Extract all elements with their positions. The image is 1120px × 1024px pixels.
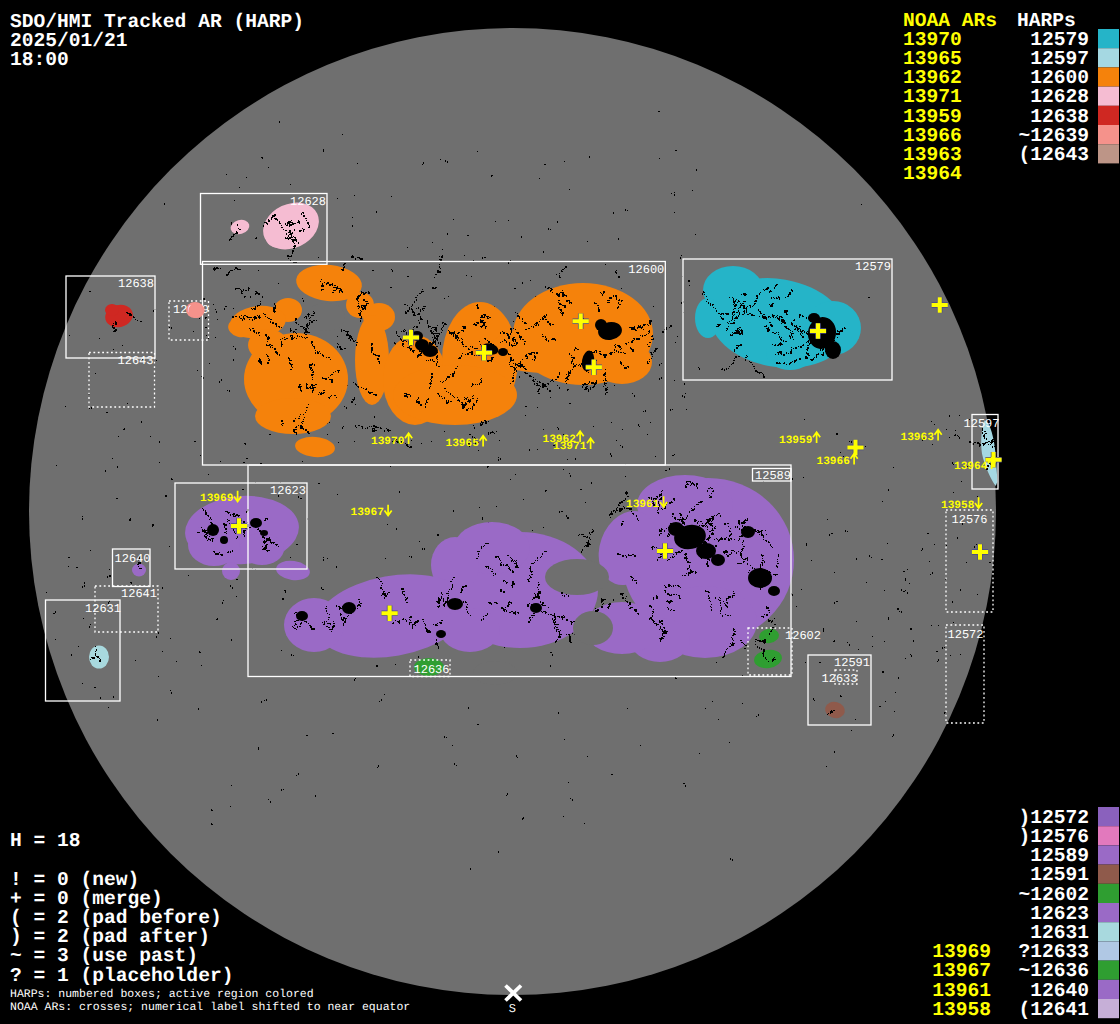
svg-text:12589: 12589 (755, 469, 791, 483)
svg-text:12636: 12636 (414, 663, 450, 677)
svg-text:13964: 13964 (954, 461, 988, 473)
svg-text:18:00: 18:00 (10, 49, 69, 71)
svg-text:12623: 12623 (270, 484, 306, 498)
svg-text:12631: 12631 (85, 602, 121, 616)
svg-text:12638: 12638 (118, 277, 154, 291)
svg-text:13970: 13970 (371, 436, 405, 448)
svg-text:12591: 12591 (834, 656, 870, 670)
svg-text:13958: 13958 (932, 999, 991, 1021)
svg-text:13971: 13971 (553, 441, 587, 453)
svg-text:13963: 13963 (901, 432, 935, 444)
svg-text:(12641: (12641 (1018, 999, 1089, 1021)
svg-text:S: S (509, 1002, 516, 1016)
svg-text:? = 1 (placeholder): ? = 1 (placeholder) (10, 965, 233, 987)
svg-text:12602: 12602 (785, 629, 821, 643)
svg-text:(12643: (12643 (1018, 144, 1089, 166)
svg-text:12643: 12643 (117, 354, 153, 368)
svg-text:13961: 13961 (626, 499, 660, 511)
svg-text:12597: 12597 (964, 417, 1000, 431)
svg-text:13964: 13964 (903, 163, 962, 185)
svg-text:12641: 12641 (121, 587, 157, 601)
svg-text:12628: 12628 (290, 195, 326, 209)
svg-text:H = 18: H = 18 (10, 830, 81, 852)
svg-text:12576: 12576 (952, 513, 988, 527)
svg-text:12572: 12572 (948, 628, 984, 642)
svg-text:12640: 12640 (115, 552, 151, 566)
svg-text:13967: 13967 (351, 507, 384, 519)
svg-text:13966: 13966 (817, 456, 851, 468)
svg-text:13958: 13958 (941, 500, 975, 512)
svg-text:12579: 12579 (855, 260, 891, 274)
svg-text:13965: 13965 (446, 438, 480, 450)
svg-text:HARPs: numbered boxes; active: HARPs: numbered boxes; active region col… (10, 988, 314, 1001)
svg-text:NOAA ARs: crosses; numerical l: NOAA ARs: crosses; numerical label shift… (10, 1001, 410, 1014)
svg-text:13959: 13959 (779, 435, 812, 447)
svg-text:12633: 12633 (822, 672, 858, 686)
svg-text:13969: 13969 (200, 493, 233, 505)
svg-text:12600: 12600 (628, 263, 664, 277)
